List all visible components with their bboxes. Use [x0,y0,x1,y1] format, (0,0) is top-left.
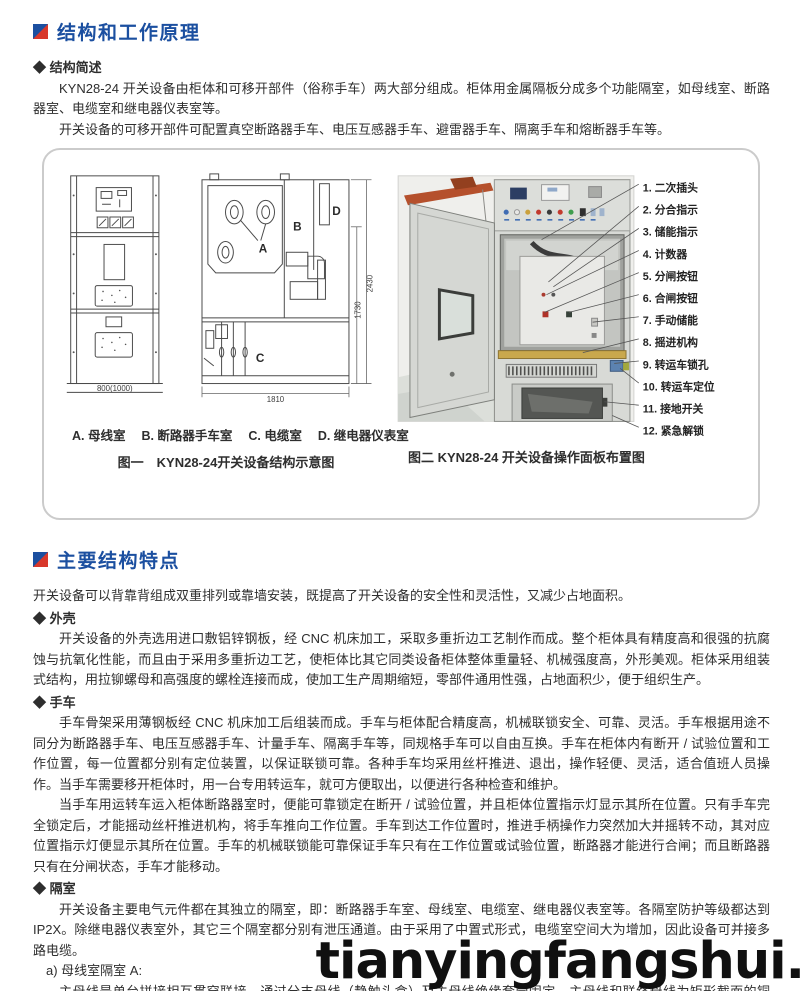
figure-panel: 800(1000) 1810 2430 1730 A B C D A. 母线室 … [42,148,760,520]
front-view-vent-dots [73,194,157,353]
section-title-features: 主要结构特点 [57,546,180,573]
callout-12: 12. 紧急解锁 [643,424,704,438]
callout-9: 9. 转运车锁孔 [643,357,709,371]
callout-3: 3. 储能指示 [643,225,698,239]
callout-labels: 1. 二次插头 2. 分合指示 3. 储能指示 4. 计数器 5. 分闸按钮 6… [643,181,715,438]
document-page: 结构和工作原理 ◆ 结构简述 KYN28-24 开关设备由柜体和可移开部件（俗称… [0,0,800,991]
transfer-lock-part [610,360,623,371]
callout-6: 6. 合闸按钮 [643,291,698,305]
dimension-labels: 800(1000) 1810 2430 1730 [97,274,375,404]
section-header-structure: 结构和工作原理 [33,18,770,45]
figure1-caption: 图一 KYN28-24开关设备结构示意图 [118,452,335,471]
callout-11: 11. 接地开关 [643,402,704,416]
subsection-heading-brief: ◆ 结构简述 [33,58,770,79]
figure1-container: 800(1000) 1810 2430 1730 A B C D A. 母线室 … [56,166,396,518]
section-marker-icon [33,552,48,567]
door-window [439,290,472,339]
switchgear-photo [398,176,634,422]
callout-5: 5. 分闸按钮 [643,269,698,283]
figure1-legend: A. 母线室 B. 断路器手车室 C. 电缆室 D. 继电器仪表室 [56,425,409,444]
cabinet-door [410,203,494,417]
paragraph-handcart-2: 当手车用运转车运入柜体断路器室时，便能可靠锁定在断开 / 试验位置，并且柜体位置… [33,795,770,877]
paragraph-overview-1: KYN28-24 开关设备由柜体和可移开部件（俗称手车）两大部分组成。柜体用金属… [33,79,770,120]
guide-rail [498,351,626,359]
figure2-panel-photo: 1. 二次插头 2. 分合指示 3. 储能指示 4. 计数器 5. 分闸按钮 6… [396,166,748,443]
door-handle [450,372,455,377]
paragraph-overview-2: 开关设备的可移开部件可配置真空断路器手车、电压互感器手车、避雷器手车、隔离手车和… [33,120,770,141]
vent-strip [506,364,596,377]
label-compartment-b: B [293,221,302,234]
section-title-structure: 结构和工作原理 [57,18,201,45]
lower-compartment [512,384,612,421]
breaker-compartment [500,235,624,351]
dim-height: 2430 [365,274,374,292]
dim-depth: 1810 [267,395,285,404]
dimension-lines [202,180,371,397]
callout-1: 1. 二次插头 [643,181,698,195]
figure1-structure-diagram: 800(1000) 1810 2430 1730 A B C D [57,166,395,413]
figure2-caption: 图二 KYN28-24 开关设备操作面板布置图 [396,447,752,466]
subsection-heading-compartment: ◆ 隔室 [33,879,770,900]
subsection-heading-handcart: ◆ 手车 [33,693,770,714]
paragraph-features-intro: 开关设备可以背靠背组成双重排列或靠墙安装，既提高了开关设备的安全性和灵活性，又减… [33,586,770,607]
dim-front-width: 800(1000) [97,384,133,393]
label-compartment-c: C [256,352,265,365]
side-view-drawing [202,174,349,384]
subsection-heading-shell: ◆ 外壳 [33,609,770,630]
section-marker-icon [33,24,48,39]
callout-7: 7. 手动储能 [643,313,698,327]
label-compartment-a: A [259,242,268,255]
section-header-features: 主要结构特点 [33,546,770,573]
paragraph-shell: 开关设备的外壳选用进口敷铝锌钢板，经 CNC 机床加工，采取多重折边工艺制作而成… [33,629,770,691]
watermark-text: tianyingfangshui. [316,936,800,987]
top-instrument-panel [494,180,630,231]
compartment-letter-labels: A B C D [256,205,341,365]
breaker-front-panel [520,256,604,344]
callout-4: 4. 计数器 [643,247,688,261]
callout-8: 8. 摇进机构 [643,335,698,349]
callout-2: 2. 分合指示 [643,203,698,217]
front-view-drawing [67,176,163,393]
callout-10: 10. 转运车定位 [643,379,715,393]
figure2-container: 1. 二次插头 2. 分合指示 3. 储能指示 4. 计数器 5. 分闸按钮 6… [396,166,752,518]
dim-inner-height: 1730 [354,301,363,319]
label-compartment-d: D [332,205,341,218]
paragraph-handcart-1: 手车骨架采用薄钢板经 CNC 机床加工后组装而成。手车与柜体配合精度高，机械联锁… [33,713,770,795]
